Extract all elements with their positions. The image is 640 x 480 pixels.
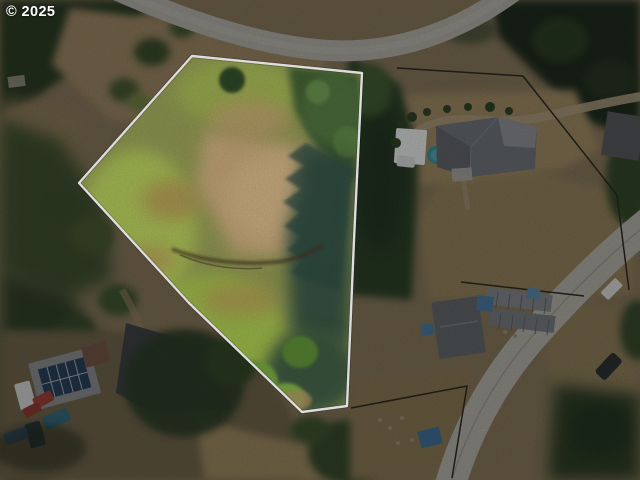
copyright-watermark: © 2025 (6, 4, 55, 20)
photo-grain (0, 0, 640, 480)
aerial-photo-canvas (0, 0, 640, 480)
aerial-photo: © 2025 (0, 0, 640, 480)
